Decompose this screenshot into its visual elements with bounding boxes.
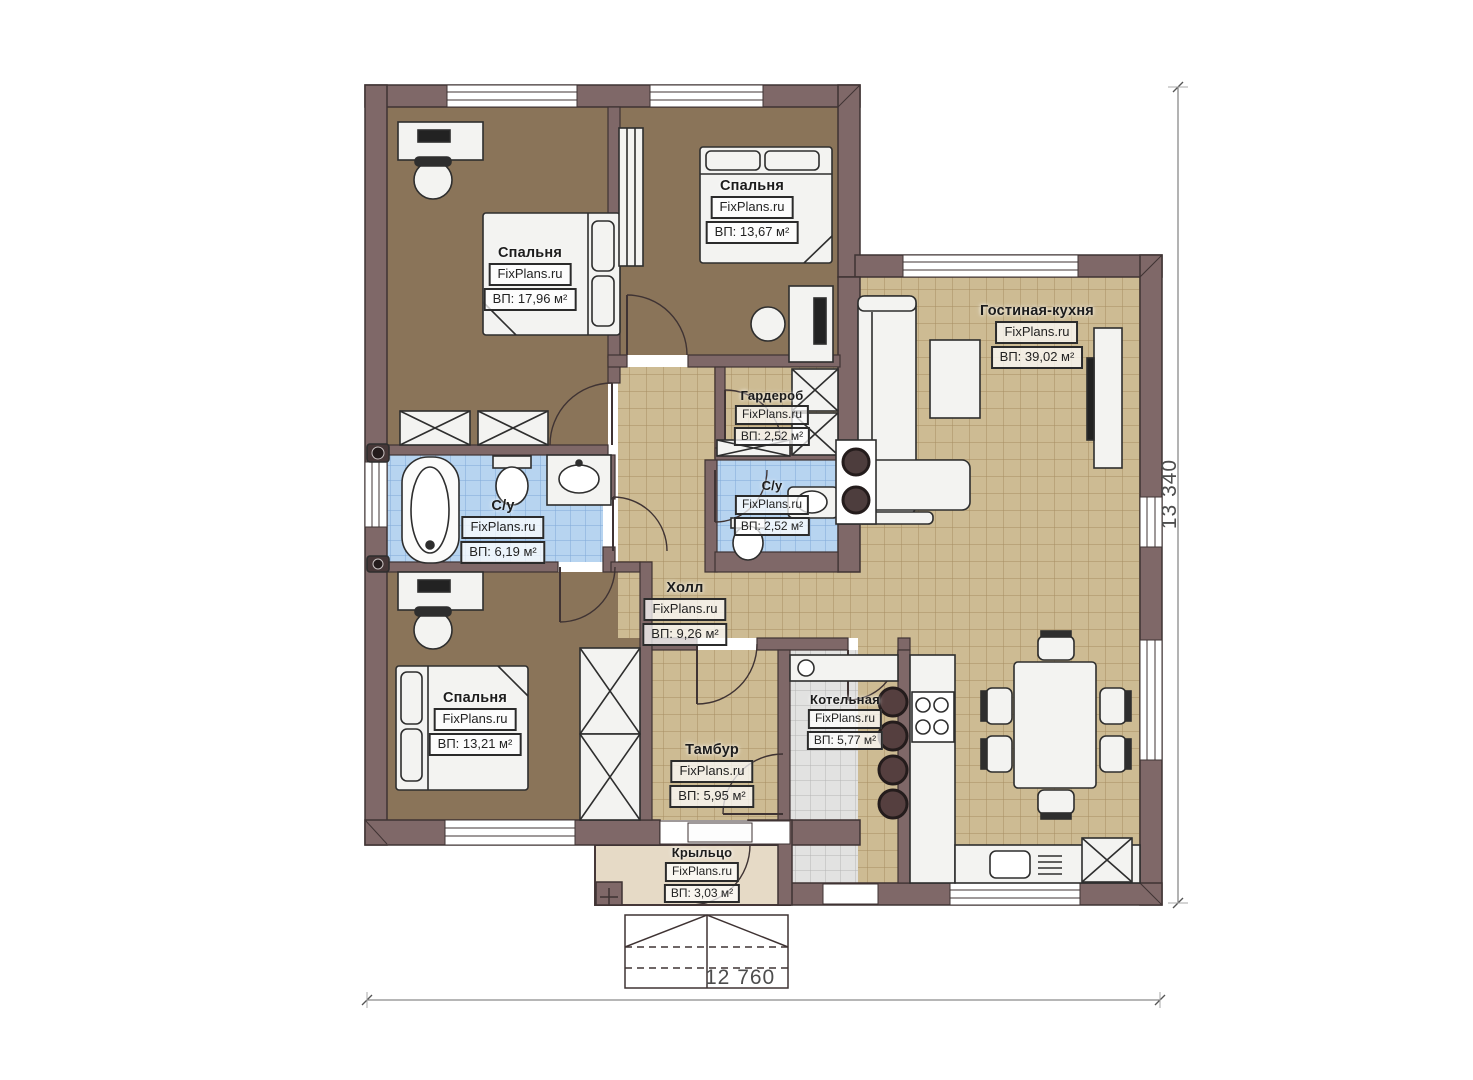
room-name: Гостиная-кухня	[980, 303, 1094, 319]
room-name: Крыльцо	[672, 845, 733, 860]
room-area: ВП: 2,52 м²	[734, 427, 810, 447]
hob	[912, 692, 954, 742]
wardrobe-box	[580, 648, 640, 734]
chair-back	[415, 157, 451, 166]
pillow	[401, 672, 422, 724]
window	[365, 462, 387, 527]
room-name: Котельная	[810, 692, 880, 707]
room-name: Холл	[666, 580, 703, 596]
room-area: ВП: 39,02 м²	[991, 346, 1084, 369]
boiler-pipe	[879, 790, 907, 818]
brand-watermark: FixPlans.ru	[433, 708, 516, 731]
sink-counter	[547, 455, 611, 505]
room-area: ВП: 17,96 м²	[484, 288, 577, 311]
room-label-boiler: Котельная FixPlans.ru ВП: 5,77 м²	[807, 692, 883, 750]
office-chair	[751, 307, 785, 341]
monitor	[418, 130, 450, 142]
chair-back	[415, 607, 451, 616]
dining-table	[1014, 662, 1096, 788]
dimension-height-label: 13 340	[1158, 449, 1182, 539]
brand-watermark: FixPlans.ru	[710, 196, 793, 219]
coffee-table	[930, 340, 980, 418]
dimension-width-label: 12 760	[705, 966, 775, 990]
brand-watermark: FixPlans.ru	[488, 263, 571, 286]
brand-watermark: FixPlans.ru	[808, 709, 882, 729]
room-label-wardrobe: Гардероб FixPlans.ru ВП: 2,52 м²	[734, 388, 810, 446]
chair	[1100, 736, 1126, 772]
room-label-living-kitchen: Гостиная-кухня FixPlans.ru ВП: 39,02 м²	[980, 303, 1094, 369]
window	[1140, 640, 1162, 760]
entry-door-opening	[660, 821, 790, 844]
brand-watermark: FixPlans.ru	[735, 405, 809, 425]
brand-watermark: FixPlans.ru	[643, 598, 726, 621]
room-name: С/у	[491, 498, 514, 514]
closet	[619, 128, 643, 266]
chair	[986, 688, 1012, 724]
room-area: ВП: 9,26 м²	[642, 623, 727, 646]
floor-plan-drawing	[0, 0, 1473, 1080]
wardrobe-box	[580, 734, 640, 820]
wall-vent	[367, 444, 389, 462]
room-name: С/у	[762, 478, 783, 493]
passage-floor	[838, 565, 862, 638]
room-label-bedroom-2: Спальня FixPlans.ru ВП: 13,67 м²	[706, 178, 799, 244]
chair	[1038, 790, 1074, 814]
floor-plan-page: Спальня FixPlans.ru ВП: 17,96 м² Спальня…	[0, 0, 1473, 1080]
boiler-pipe	[879, 722, 907, 750]
kitchen-counter-vertical	[910, 655, 955, 883]
sofa-armrest	[858, 296, 916, 311]
monitor	[418, 580, 450, 592]
pillow	[592, 276, 614, 326]
pillow	[765, 151, 819, 170]
room-name: Спальня	[720, 178, 784, 194]
pillow	[592, 221, 614, 271]
room-label-bedroom-1: Спальня FixPlans.ru ВП: 17,96 м²	[484, 245, 577, 311]
brand-watermark: FixPlans.ru	[670, 760, 753, 783]
room-label-hall: Холл FixPlans.ru ВП: 9,26 м²	[642, 580, 727, 646]
brand-watermark: FixPlans.ru	[995, 321, 1078, 344]
room-area: ВП: 13,67 м²	[706, 221, 799, 244]
window	[445, 820, 575, 845]
window	[447, 85, 577, 107]
room-area: ВП: 5,95 м²	[669, 785, 754, 808]
window	[903, 255, 1078, 277]
monitor	[814, 298, 826, 344]
window	[950, 883, 1080, 905]
fridge	[1082, 838, 1132, 882]
vent-stack	[836, 440, 876, 524]
chair	[986, 736, 1012, 772]
room-area: ВП: 2,52 м²	[734, 517, 810, 537]
room-label-vestibule: Тамбур FixPlans.ru ВП: 5,95 м²	[669, 742, 754, 808]
room-label-bathroom-1: С/у FixPlans.ru ВП: 6,19 м²	[460, 498, 545, 564]
brand-watermark: FixPlans.ru	[461, 516, 544, 539]
room-area: ВП: 6,19 м²	[460, 541, 545, 564]
wall-vent	[367, 556, 389, 572]
chair	[1100, 688, 1126, 724]
room-label-bathroom-2: С/у FixPlans.ru ВП: 2,52 м²	[734, 478, 810, 536]
boiler-pipe	[879, 756, 907, 784]
room-label-porch: Крыльцо FixPlans.ru ВП: 3,03 м²	[664, 845, 740, 903]
pillow	[401, 729, 422, 781]
room-name: Тамбур	[685, 742, 739, 758]
brand-watermark: FixPlans.ru	[735, 495, 809, 515]
wardrobe-box	[478, 411, 548, 445]
room-label-bedroom-3: Спальня FixPlans.ru ВП: 13,21 м²	[429, 690, 522, 756]
room-area: ВП: 3,03 м²	[664, 884, 740, 904]
boiler-pipe	[879, 688, 907, 716]
brand-watermark: FixPlans.ru	[665, 862, 739, 882]
back-door-opening	[823, 884, 878, 904]
room-name: Гардероб	[740, 388, 803, 403]
room-name: Спальня	[498, 245, 562, 261]
room-area: ВП: 13,21 м²	[429, 733, 522, 756]
window	[650, 85, 763, 107]
room-name: Спальня	[443, 690, 507, 706]
wardrobe-box	[400, 411, 470, 445]
room-area: ВП: 5,77 м²	[807, 731, 883, 751]
pillow	[706, 151, 760, 170]
chair	[1038, 636, 1074, 660]
